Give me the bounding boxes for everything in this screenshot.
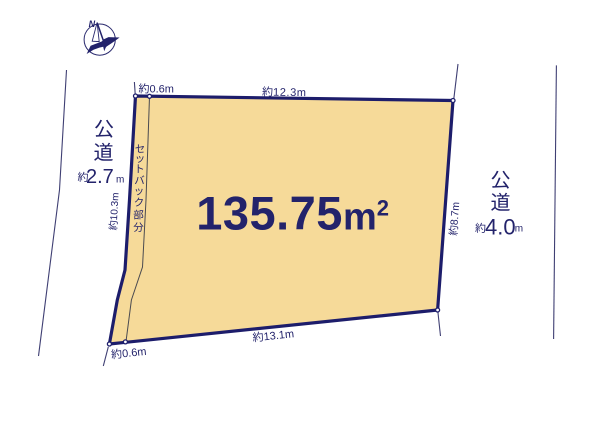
svg-text:0.6m: 0.6m xyxy=(121,346,147,360)
svg-text:N: N xyxy=(89,19,96,29)
svg-text:12.3m: 12.3m xyxy=(273,87,307,99)
svg-text:10.3m: 10.3m xyxy=(109,192,121,220)
svg-text:4.0: 4.0 xyxy=(485,215,516,240)
svg-text:0.6m: 0.6m xyxy=(150,84,174,96)
svg-text:2.7: 2.7 xyxy=(86,166,114,188)
svg-text:m: m xyxy=(116,175,124,186)
svg-text:m: m xyxy=(515,224,523,235)
svg-text:8.7m: 8.7m xyxy=(449,201,463,225)
